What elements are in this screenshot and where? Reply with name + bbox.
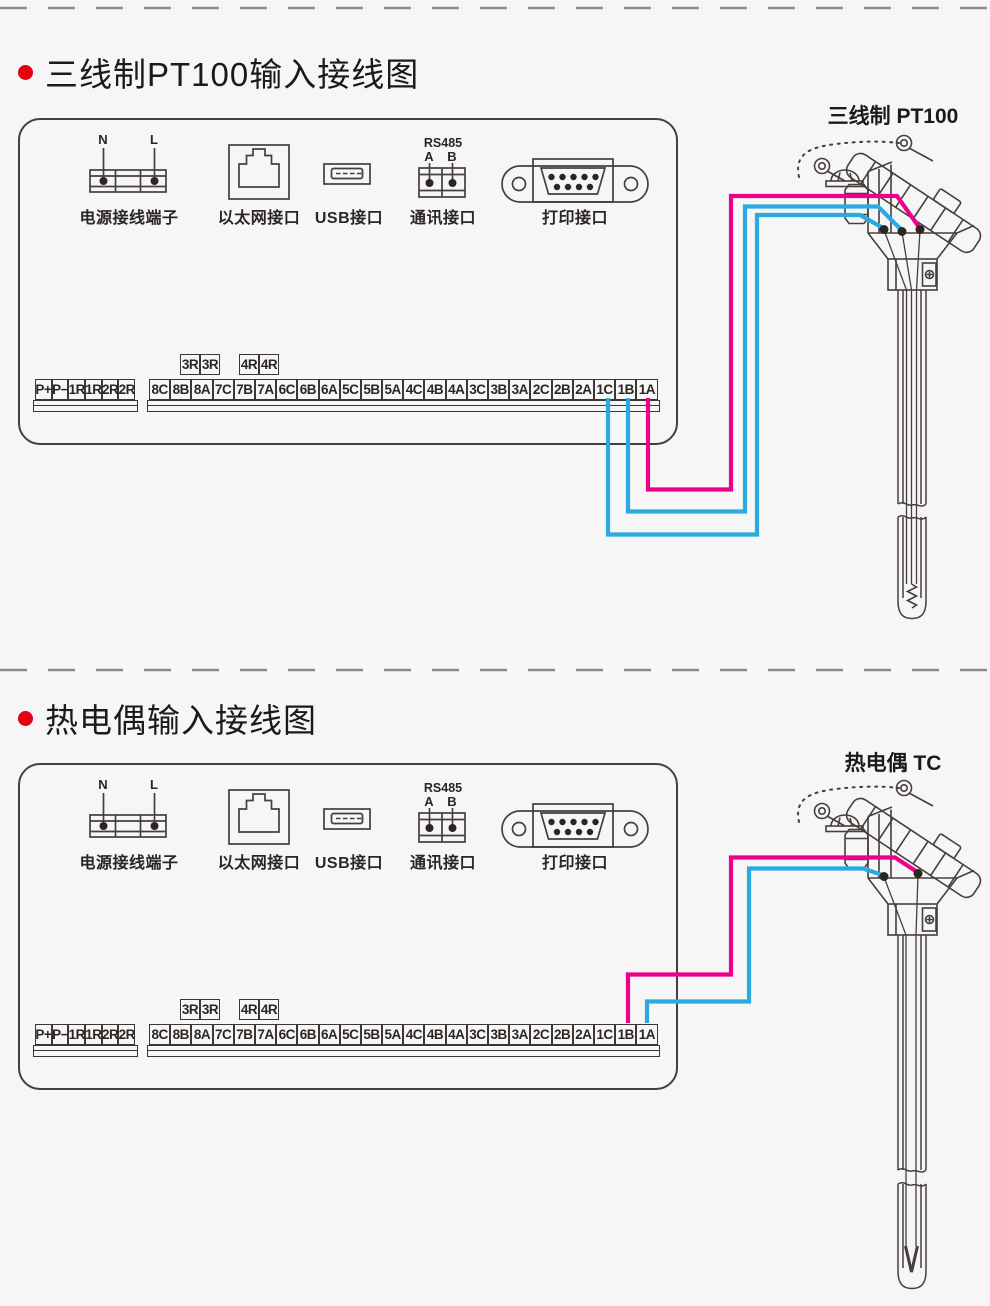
- tc-junction-symbol: [906, 1246, 918, 1272]
- terminal-cell: 3R: [200, 999, 220, 1020]
- terminal-cell: P+: [35, 1024, 52, 1045]
- terminal-cell: 1B: [615, 1024, 636, 1045]
- comm-label: 通讯接口: [403, 204, 483, 228]
- db9-print-port-icon: [502, 804, 648, 847]
- power-pin-n: N: [95, 777, 111, 792]
- comm-label: 通讯接口: [403, 849, 483, 873]
- pt100-probe: [884, 230, 926, 619]
- terminal-cell: 1B: [615, 379, 636, 400]
- terminal-cell: 3A: [509, 1024, 530, 1045]
- collar-screw-icon: [926, 271, 934, 279]
- terminal-cell: 4A: [446, 1024, 467, 1045]
- terminal-cell: 6C: [276, 1024, 297, 1045]
- power-label: 电源接线端子: [69, 204, 189, 228]
- terminal-cell: 8A: [191, 1024, 212, 1045]
- terminal-cell: 8B: [170, 1024, 191, 1045]
- input-terminal-strip: 8C8B8A7C7B7A6C6B6A5C5B5A4C4B4A3C3B3A2C2B…: [149, 379, 658, 400]
- usb-label: USB接口: [309, 849, 389, 873]
- terminal-cell: 2B: [552, 379, 573, 400]
- terminal-cell: 2R: [118, 1024, 135, 1045]
- usb-label: USB接口: [309, 204, 389, 228]
- terminal-cell: 1R: [68, 1024, 85, 1045]
- printer-label: 打印接口: [535, 849, 615, 873]
- power-terminal-strip: P+P−1R1R2R2R: [35, 1024, 135, 1045]
- terminal-cell: 1R: [85, 379, 102, 400]
- power-terminal-icon: [90, 148, 166, 192]
- terminal-cell: P−: [52, 1024, 69, 1045]
- terminal-cell: P+: [35, 379, 52, 400]
- ethernet-label: 以太网接口: [199, 849, 319, 873]
- printer-label: 打印接口: [535, 204, 615, 228]
- rs485-pin-a: A: [421, 794, 437, 809]
- power-terminal-icon: [90, 793, 166, 837]
- ethernet-port-icon: [229, 790, 289, 844]
- terminal-cell: 2R: [118, 379, 135, 400]
- terminal-cell: 6B: [297, 379, 318, 400]
- ethernet-port-icon: [229, 145, 289, 199]
- power-pin-n: N: [95, 132, 111, 147]
- aux-terminal-strip-4r: 4R4R: [239, 354, 279, 375]
- tc-probe: [884, 874, 926, 1289]
- length-break-mark: [898, 503, 926, 506]
- terminal-cell: 1A: [636, 1024, 657, 1045]
- terminal-cell: 6B: [297, 1024, 318, 1045]
- section-title-pt100: 三线制PT100输入接线图: [18, 48, 419, 96]
- terminal-cell: 7B: [234, 1024, 255, 1045]
- terminal-cell: P−: [52, 379, 69, 400]
- rtd-element-symbol: [908, 584, 917, 608]
- terminal-cell: 4R: [239, 354, 259, 375]
- bullet-icon: [18, 65, 33, 80]
- terminal-cell: 4C: [403, 379, 424, 400]
- terminal-cell: 1C: [594, 379, 615, 400]
- recorder-rear-panel: N L RS485 A B 电源接线端子 以太网接口 USB接口 通讯接口 打印…: [18, 763, 678, 1090]
- terminal-cell: 6A: [319, 1024, 340, 1045]
- sensor-label-pt100: 三线制 PT100: [808, 100, 978, 130]
- usb-port-icon: [324, 809, 370, 829]
- terminal-cell: 2R: [102, 1024, 119, 1045]
- terminal-cell: 8B: [170, 379, 191, 400]
- terminal-cell: 3A: [509, 379, 530, 400]
- rs485-bus-label: RS485: [411, 136, 475, 150]
- cap-chain-dotted: [798, 142, 899, 177]
- terminal-cell: 4B: [424, 379, 445, 400]
- terminal-cell: 7B: [234, 379, 255, 400]
- terminal-cell: 6C: [276, 379, 297, 400]
- ethernet-label: 以太网接口: [199, 204, 319, 228]
- bullet-icon: [18, 711, 33, 726]
- db9-print-port-icon: [502, 159, 648, 202]
- section-title-text: 热电偶输入接线图: [45, 694, 317, 742]
- wing-nut-dome: [831, 170, 859, 181]
- terminal-cell: 5B: [361, 1024, 382, 1045]
- terminal-cell: 3C: [467, 379, 488, 400]
- terminal-cell: 7C: [213, 1024, 234, 1045]
- terminal-cell: 7A: [255, 1024, 276, 1045]
- terminal-cell: 4R: [239, 999, 259, 1020]
- sensor-terminal-dot: [916, 225, 925, 234]
- sensor-head-art: [798, 781, 990, 936]
- sensor-terminal-dot: [880, 872, 889, 881]
- terminal-cell: 2C: [530, 379, 551, 400]
- terminal-cell: 7C: [213, 379, 234, 400]
- terminal-base: [147, 1045, 660, 1057]
- terminal-cell: 3B: [488, 379, 509, 400]
- terminal-base: [33, 400, 138, 412]
- aux-terminal-strip-4r: 4R4R: [239, 999, 279, 1020]
- terminal-cell: 8C: [149, 1024, 170, 1045]
- rs485-pin-b: B: [444, 794, 460, 809]
- terminal-cell: 8C: [149, 379, 170, 400]
- section-title-text: 三线制PT100输入接线图: [45, 48, 419, 96]
- power-terminal-strip: P+P−1R1R2R2R: [35, 379, 135, 400]
- recorder-rear-panel: N L RS485 A B 电源接线端子 以太网接口 USB接口 通讯接口 打印…: [18, 118, 678, 445]
- terminal-cell: 2A: [573, 1024, 594, 1045]
- terminal-cell: 4C: [403, 1024, 424, 1045]
- terminal-cell: 5A: [382, 1024, 403, 1045]
- sensor-terminal-dot: [914, 869, 923, 878]
- sensor-terminal-dot: [880, 225, 889, 234]
- head-funnel: [868, 233, 957, 259]
- sensor-head-art: [798, 136, 990, 291]
- ribbed-cap-band: [843, 139, 990, 256]
- power-label: 电源接线端子: [69, 849, 189, 873]
- terminal-cell: 1C: [594, 1024, 615, 1045]
- terminal-cell: 3R: [200, 354, 220, 375]
- rs485-pin-b: B: [444, 149, 460, 164]
- section-title-tc: 热电偶输入接线图: [18, 694, 317, 742]
- aux-terminal-strip-3r: 3R3R: [180, 354, 220, 375]
- probe-collar: [888, 259, 937, 290]
- rs485-pin-a: A: [421, 149, 437, 164]
- usb-port-icon: [324, 164, 370, 184]
- terminal-cell: 2A: [573, 379, 594, 400]
- terminal-cell: 4R: [259, 999, 279, 1020]
- terminal-cell: 1R: [85, 1024, 102, 1045]
- cap-screw-icon: [897, 136, 912, 151]
- terminal-cell: 2B: [552, 1024, 573, 1045]
- aux-terminal-strip-3r: 3R3R: [180, 999, 220, 1020]
- terminal-cell: 1R: [68, 379, 85, 400]
- terminal-cell: 2R: [102, 379, 119, 400]
- sensor-terminal-dot: [898, 227, 907, 236]
- rs485-bus-label: RS485: [411, 781, 475, 795]
- terminal-cell: 3R: [180, 354, 200, 375]
- terminal-base: [147, 400, 660, 412]
- terminal-cell: 4A: [446, 379, 467, 400]
- wire-blue-1a: [647, 869, 884, 1024]
- wiring-diagram-page: { "sections": [ { "title": "三线制PT100输入接线…: [0, 0, 990, 1306]
- terminal-cell: 6A: [319, 379, 340, 400]
- rs485-terminal-icon: [419, 163, 465, 197]
- terminal-cell: 3B: [488, 1024, 509, 1045]
- head-body: [868, 162, 974, 233]
- input-terminal-strip: 8C8B8A7C7B7A6C6B6A5C5B5A4C4B4A3C3B3A2C2B…: [149, 1024, 658, 1045]
- terminal-cell: 1A: [636, 379, 657, 400]
- wire-pink-1a: [648, 196, 920, 490]
- terminal-cell: 3C: [467, 1024, 488, 1045]
- lid-screw-icon: [815, 159, 830, 174]
- power-pin-l: L: [146, 132, 162, 147]
- terminal-cell: 4R: [259, 354, 279, 375]
- terminal-cell: 2C: [530, 1024, 551, 1045]
- conduit-hex-nut: [845, 185, 868, 224]
- terminal-cell: 7A: [255, 379, 276, 400]
- terminal-cell: 3R: [180, 999, 200, 1020]
- rs485-terminal-icon: [419, 808, 465, 842]
- length-break-mark: [898, 1169, 926, 1172]
- sensor-label-tc: 热电偶 TC: [808, 747, 978, 777]
- terminal-base: [33, 1045, 138, 1057]
- terminal-cell: 4B: [424, 1024, 445, 1045]
- terminal-cell: 5C: [340, 1024, 361, 1045]
- terminal-cell: 8A: [191, 379, 212, 400]
- power-pin-l: L: [146, 777, 162, 792]
- terminal-cell: 5C: [340, 379, 361, 400]
- terminal-cell: 5A: [382, 379, 403, 400]
- terminal-cell: 5B: [361, 379, 382, 400]
